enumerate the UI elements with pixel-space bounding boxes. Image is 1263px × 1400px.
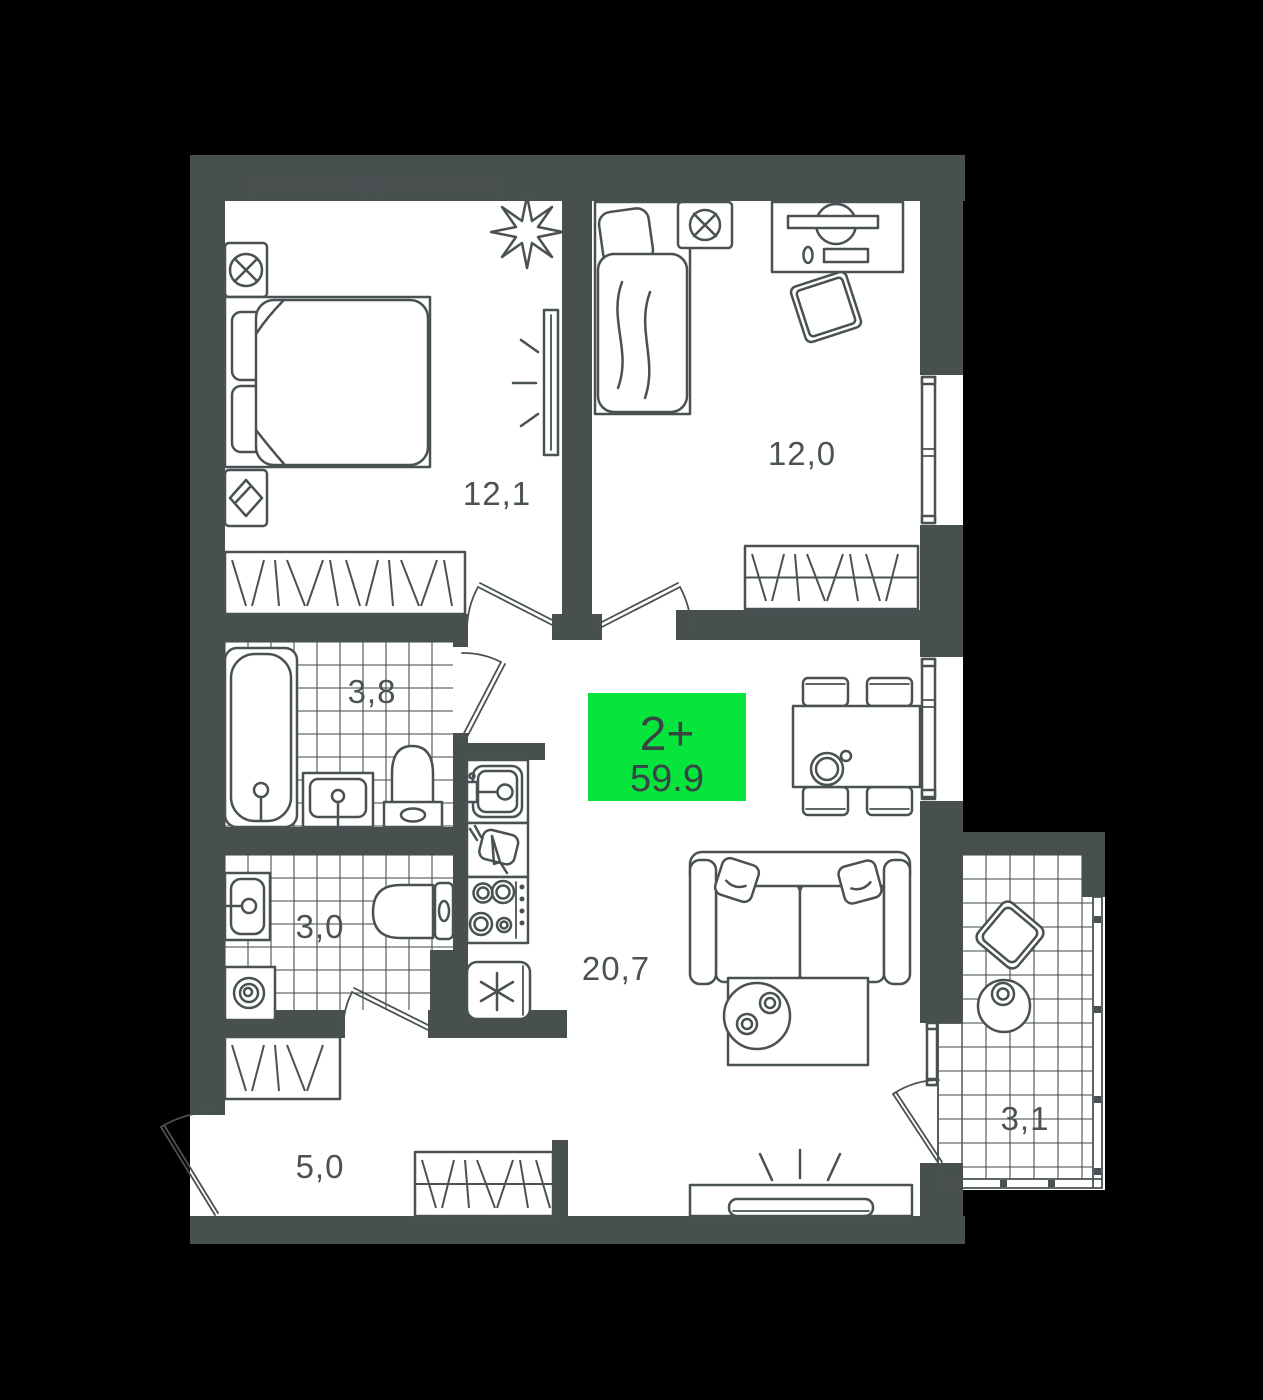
chair-icon [803, 678, 848, 706]
room-label-hallway: 5,0 [296, 1148, 345, 1185]
cutting-board-icon [467, 823, 528, 877]
single-bed-icon [595, 202, 690, 414]
round-table-icon [978, 980, 1030, 1032]
bathtub-icon [225, 648, 297, 827]
sofa-icon [690, 852, 910, 984]
room-label-balcony: 3,1 [1001, 1100, 1050, 1137]
badge-area: 59.9 [630, 758, 704, 800]
washing-machine-icon [225, 967, 275, 1020]
desk-icon [772, 202, 903, 272]
floor-plan-canvas: 12,1 12,0 3,8 3,0 20,7 5,0 3,1 2+ 59.9 [0, 0, 1263, 1400]
chair-icon [867, 787, 912, 815]
room-label-toilet: 3,0 [296, 908, 345, 945]
window-icon-balcony-panel [927, 1023, 937, 1085]
sink-icon [225, 873, 270, 940]
chair-icon [867, 678, 912, 706]
room-label-bathroom: 3,8 [348, 673, 397, 710]
double-bed-icon [225, 297, 430, 467]
chair-icon [803, 787, 848, 815]
badge-type: 2+ [640, 708, 695, 761]
kitchen-sink-icon [467, 760, 528, 823]
fridge-icon [467, 962, 530, 1019]
stove-icon [467, 877, 528, 943]
toilet-icon [373, 883, 453, 939]
room-label-living-kitchen: 20,7 [582, 950, 650, 987]
pillow-icon [837, 859, 884, 906]
sink-icon [303, 773, 373, 827]
kitchen-furniture [467, 760, 530, 1019]
room-label-bedroom-2: 12,0 [768, 435, 836, 472]
room-label-bedroom-1: 12,1 [463, 475, 531, 512]
coffee-table-icon [724, 978, 868, 1065]
window-icon-dining [922, 659, 935, 799]
plant-icon [491, 196, 563, 268]
floor-plan: 12,1 12,0 3,8 3,0 20,7 5,0 3,1 2+ 59.9 [0, 0, 1263, 1400]
window-icon-bedroom-2 [922, 377, 935, 523]
apartment-badge[interactable]: 2+ 59.9 [588, 693, 746, 801]
